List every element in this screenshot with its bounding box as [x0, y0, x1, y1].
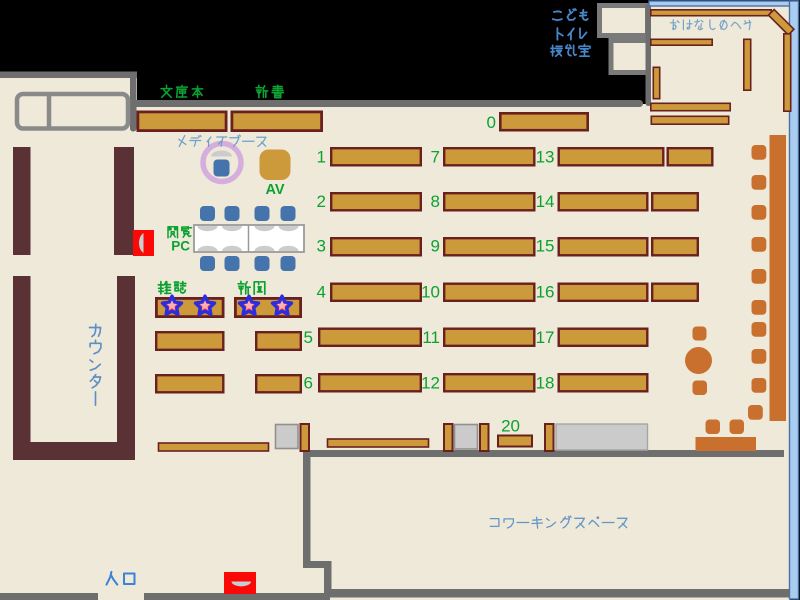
svg-text:17: 17 [536, 328, 555, 347]
svg-text:16: 16 [536, 283, 555, 302]
svg-text:9: 9 [431, 237, 440, 256]
svg-text:7: 7 [431, 148, 440, 167]
svg-text:14: 14 [536, 192, 555, 211]
svg-text:13: 13 [536, 148, 555, 167]
svg-text:15: 15 [536, 237, 555, 256]
svg-text:18: 18 [536, 374, 555, 393]
svg-text:PC: PC [171, 239, 190, 254]
svg-text:11: 11 [422, 328, 440, 347]
svg-text:AV: AV [265, 182, 284, 198]
svg-text:3: 3 [317, 237, 326, 256]
svg-text:12: 12 [421, 374, 440, 393]
svg-text:8: 8 [431, 192, 440, 211]
svg-text:2: 2 [317, 192, 326, 211]
svg-text:4: 4 [317, 283, 326, 302]
svg-text:1: 1 [317, 148, 326, 167]
svg-text:20: 20 [501, 417, 520, 436]
svg-text:5: 5 [304, 328, 313, 347]
svg-text:6: 6 [304, 374, 313, 393]
svg-text:10: 10 [421, 283, 440, 302]
svg-text:0: 0 [487, 113, 496, 132]
